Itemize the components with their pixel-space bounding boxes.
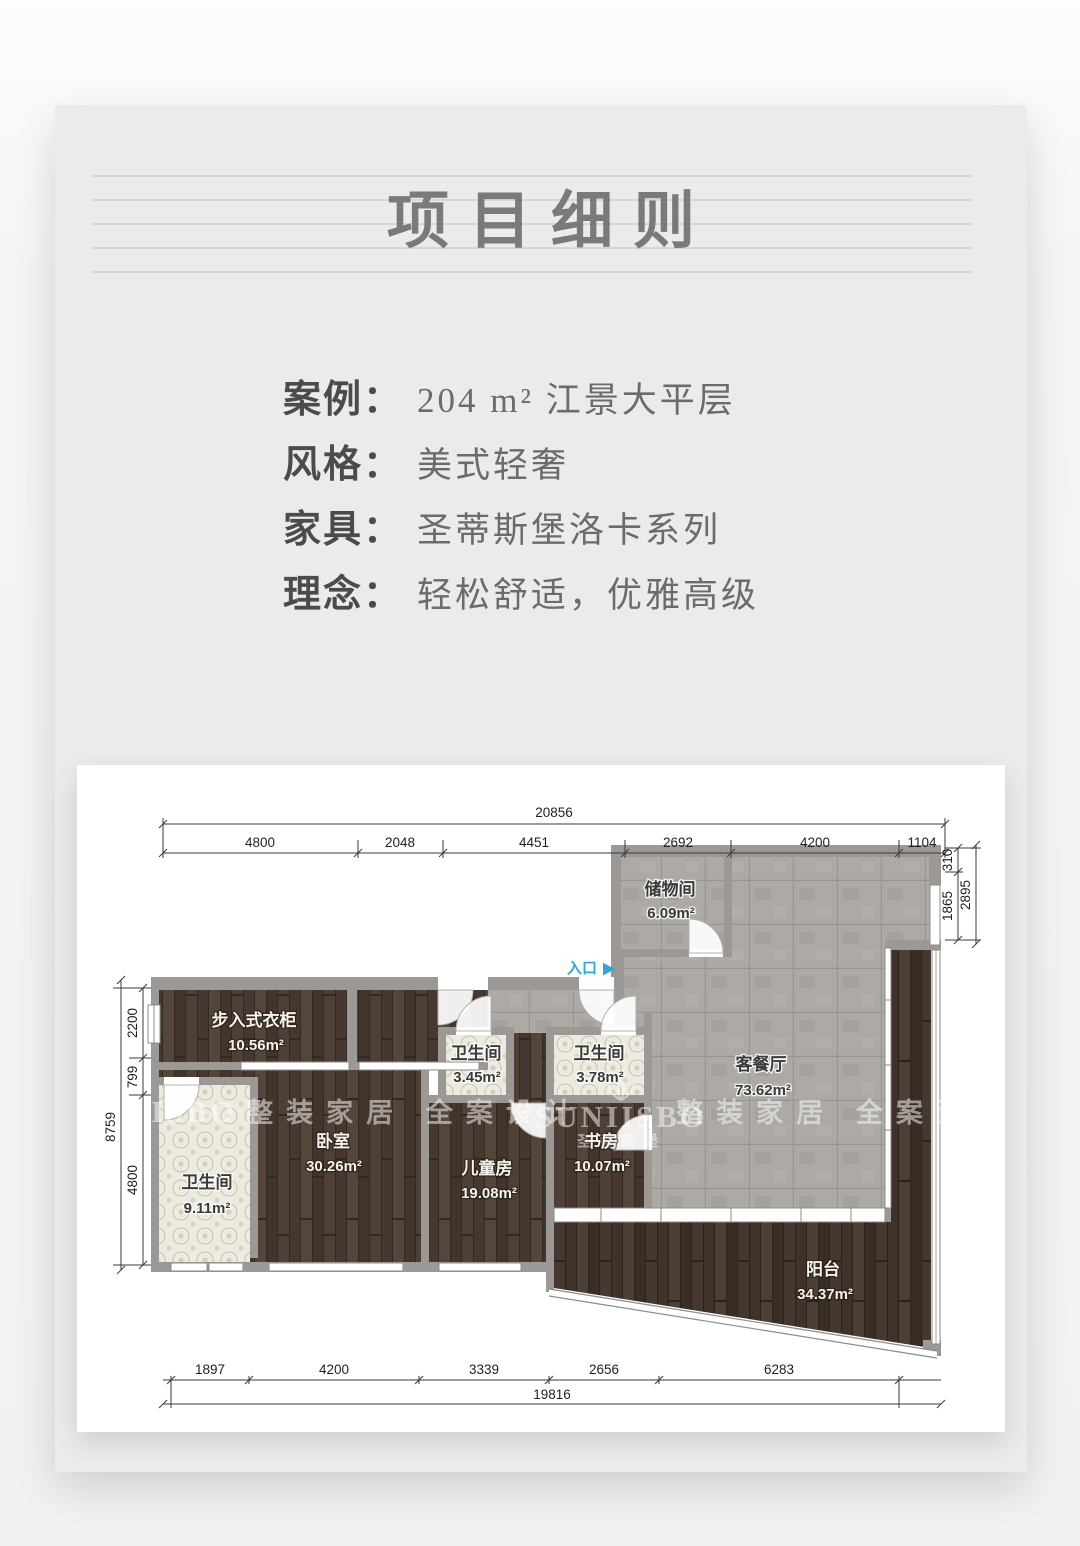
window-row-balcony [554,1208,885,1222]
room-area-study: 10.07m² [574,1158,630,1175]
entrance-label: 入口 [567,960,597,977]
room-area-bedroom: 30.26m² [306,1158,362,1175]
page-title: 项目细则 [55,183,1027,261]
info-label: 案例： [283,368,403,423]
room-area-bath-a: 3.45m² [453,1069,501,1086]
info-row-case: 案例： 204 m² 江景大平层 [283,368,883,408]
room-name-study: 书房 [584,1131,618,1151]
room-name-bath-master: 卫生间 [182,1172,233,1192]
info-row-furniture: 家具： 圣蒂斯堡洛卡系列 [283,498,883,538]
project-detail-card: 项目细则 案例： 204 m² 江景大平层 风格： 美式轻奢 家具： 圣蒂斯堡洛… [55,105,1027,1472]
info-label: 家具： [283,498,403,553]
info-label: 风格： [283,433,403,488]
room-area-living: 73.62m² [735,1082,791,1099]
dim-top-seg: 4200 [800,835,830,850]
dim-left-seg: 2200 [125,1008,140,1038]
info-value: 圣蒂斯堡洛卡系列 [417,502,721,553]
dim-bottom-seg: 1897 [195,1362,225,1377]
balcony-side-floor [891,948,931,1222]
room-area-storage: 6.09m² [647,905,695,922]
window-right-upper [930,885,940,945]
floorplan-svg: SUNIISBO 整装家居 全案设计 SUNIISBO 圣蒂斯堡 整装家居 全案… [77,765,1005,1432]
dim-top-seg: 1104 [907,835,937,850]
room-area-balcony: 34.37m² [797,1286,853,1303]
window-bottom [171,1263,207,1271]
info-label: 理念： [283,563,403,618]
room-name-storage: 储物间 [645,879,696,899]
decor-line [93,271,971,273]
room-area-bath-b: 3.78m² [576,1069,624,1086]
balcony-floor [554,1222,931,1348]
info-value: 204 m² 江景大平层 [417,372,736,423]
entrance-marker: 入口 ▶ [567,960,616,977]
dim-top-seg: 4800 [245,835,275,850]
dim-top-seg: 2048 [385,835,415,850]
closet-slider [241,1062,349,1070]
dim-top-seg: 2692 [663,835,693,850]
window-bottom [209,1263,243,1271]
room-name-kids: 儿童房 [461,1158,513,1178]
window-bottom [269,1263,403,1271]
dim-bottom-seg: 3339 [469,1362,499,1377]
dim-right-seg: 310 [940,849,955,872]
dim-left-seg: 4800 [125,1165,140,1195]
room-name-bath-a: 卫生间 [451,1043,502,1063]
room-area-closet: 10.56m² [228,1037,284,1054]
room-area-bath-master: 9.11m² [184,1200,231,1217]
slogan-watermark-right: 整装家居 全案设计 [676,1097,1005,1128]
info-value: 美式轻奢 [417,437,569,488]
info-value: 轻松舒适，优雅高级 [417,567,759,618]
entrance-arrow-icon: ▶ [602,960,616,977]
dim-left-total: 8759 [103,1112,118,1142]
kids-vestibule-floor [514,1033,546,1103]
decor-line [93,175,971,177]
room-area-kids: 19.08m² [461,1185,517,1202]
dim-right-seg: 1865 [940,891,955,921]
dim-bottom-total: 19816 [533,1387,571,1402]
floorplan-image: SUNIISBO 整装家居 全案设计 SUNIISBO 圣蒂斯堡 整装家居 全案… [77,765,1005,1432]
dim-top-total: 20856 [535,805,573,820]
room-name-balcony: 阳台 [806,1259,840,1279]
room-name-bedroom: 卧室 [316,1131,350,1151]
dim-bottom-seg: 2656 [589,1362,619,1377]
brand-watermark-left: SUNIISBO [77,1094,237,1129]
room-name-living: 客餐厅 [735,1054,787,1074]
dim-bottom-seg: 4200 [319,1362,349,1377]
dim-left-seg: 799 [125,1066,140,1089]
info-row-concept: 理念： 轻松舒适，优雅高级 [283,563,883,603]
room-name-bath-b: 卫生间 [574,1043,625,1063]
window-living-right [885,948,891,1208]
dim-bottom-seg: 6283 [764,1362,794,1377]
dim-right-total: 2895 [958,880,973,910]
dim-top-seg: 4451 [519,835,549,850]
room-name-closet: 步入式衣柜 [212,1010,297,1030]
project-info-list: 案例： 204 m² 江景大平层 风格： 美式轻奢 家具： 圣蒂斯堡洛卡系列 理… [283,368,883,628]
window-bottom [439,1263,521,1271]
info-row-style: 风格： 美式轻奢 [283,433,883,473]
